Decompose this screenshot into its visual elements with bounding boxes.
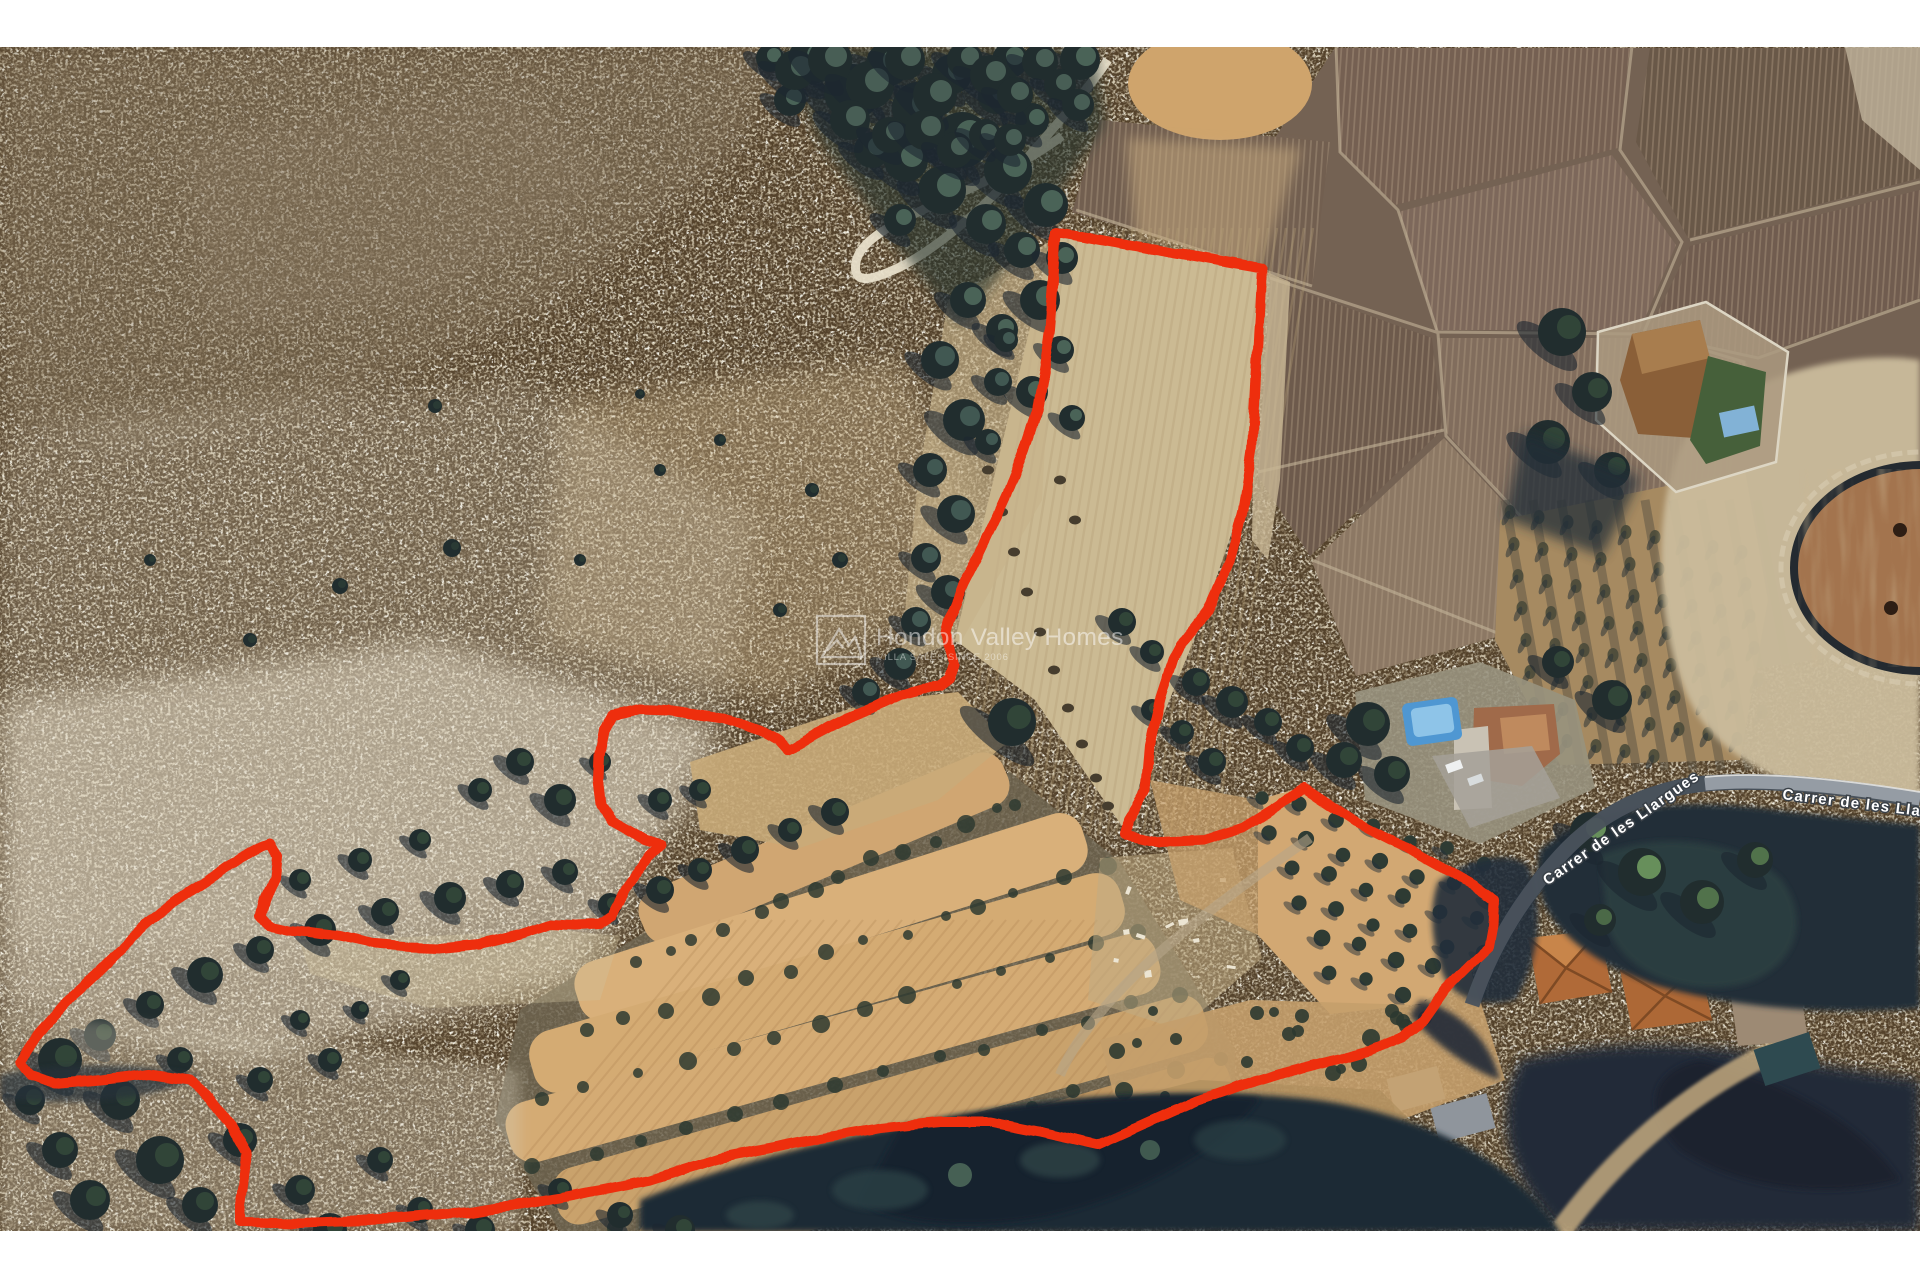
svg-text:VILLA SALES SINCE 2006: VILLA SALES SINCE 2006	[877, 652, 1009, 663]
svg-text:Hondon Valley Homes: Hondon Valley Homes	[876, 624, 1124, 651]
